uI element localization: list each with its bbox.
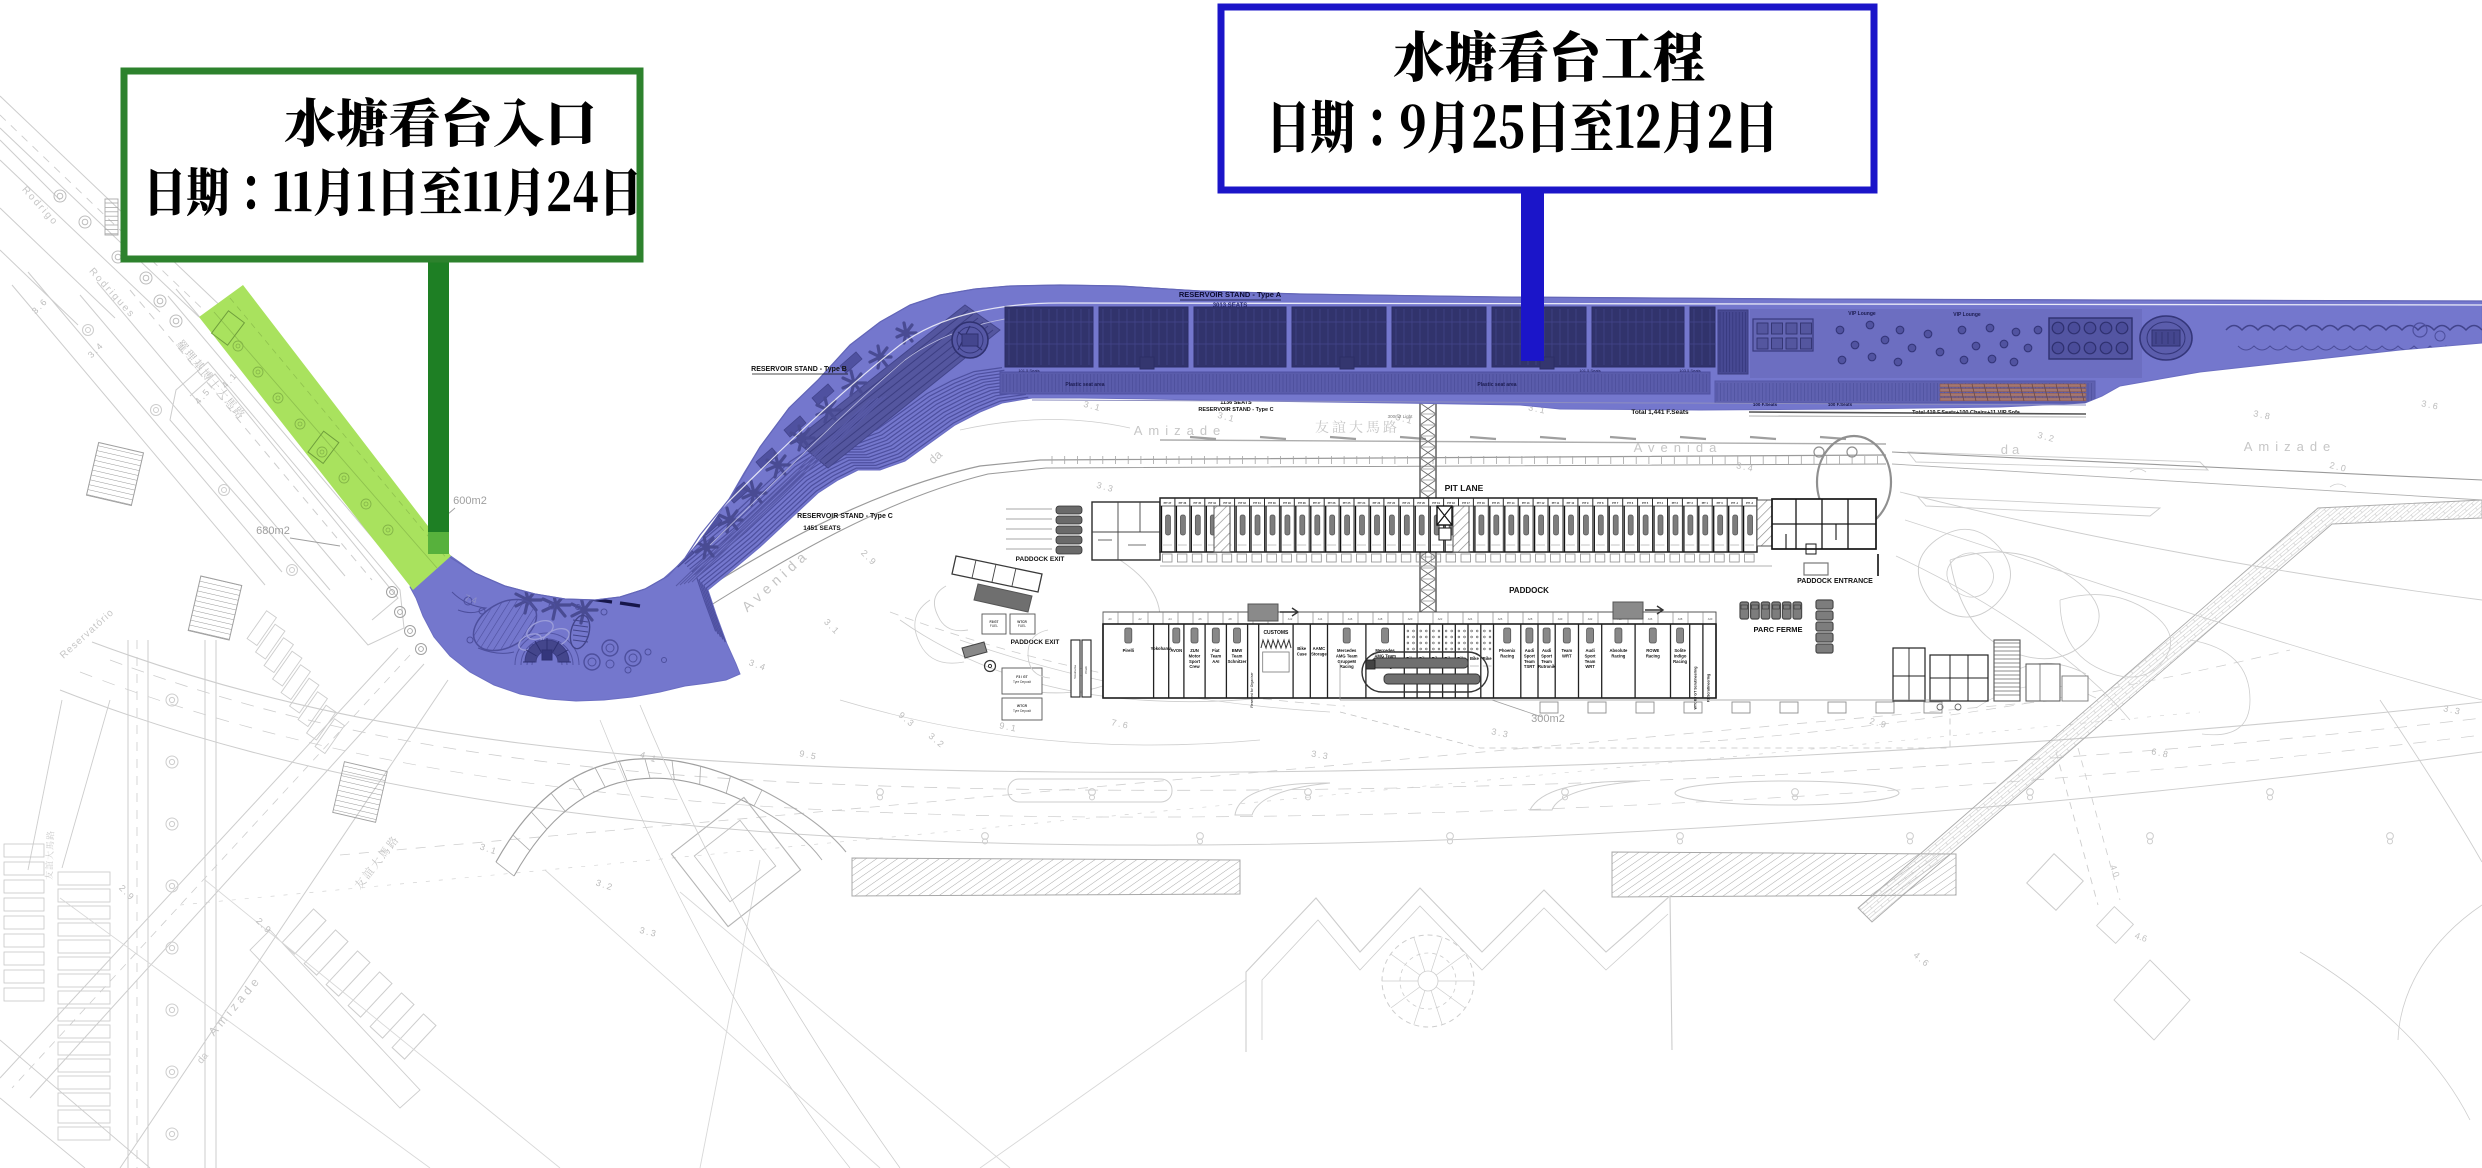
svg-text:Storage: Storage (1311, 651, 1327, 656)
svg-text:PADDOCK: PADDOCK (1509, 586, 1549, 595)
svg-text:101.5 Seats: 101.5 Seats (1579, 368, 1600, 373)
svg-text:AAMC: AAMC (1313, 646, 1326, 651)
svg-text:Team: Team (1524, 659, 1535, 664)
svg-text:PIT 14: PIT 14 (1507, 501, 1515, 505)
svg-text:Plastic seat area: Plastic seat area (1477, 382, 1516, 388)
svg-text:A2: A2 (1138, 617, 1142, 621)
svg-text:103.5 Seats: 103.5 Seats (1679, 368, 1700, 373)
svg-text:PIT 8: PIT 8 (1597, 501, 1604, 505)
svg-text:Crew: Crew (1189, 664, 1200, 669)
svg-text:Team: Team (1210, 653, 1221, 658)
svg-text:RESERVOIR STAND - Type C: RESERVOIR STAND - Type C (797, 513, 893, 520)
svg-text:PIT 37: PIT 37 (1164, 501, 1172, 505)
svg-text:BMW: BMW (1232, 648, 1243, 653)
svg-text:A4: A4 (1168, 617, 1172, 621)
svg-text:PIT 22: PIT 22 (1387, 501, 1395, 505)
svg-text:PIT 20: PIT 20 (1417, 501, 1425, 505)
svg-text:PIT 4: PIT 4 (1657, 501, 1664, 505)
svg-text:Racing: Racing (1611, 653, 1625, 658)
svg-text:1451 SEATS: 1451 SEATS (803, 525, 841, 532)
svg-text:Phoenix: Phoenix (1499, 648, 1516, 653)
svg-text:Bike: Bike (1470, 656, 1480, 661)
svg-text:PIT 2: PIT 2 (1687, 501, 1694, 505)
svg-text:Racing: Racing (1646, 653, 1660, 658)
svg-text:PIT 34: PIT 34 (1208, 501, 1216, 505)
svg-text:A24: A24 (1468, 617, 1473, 621)
svg-text:RESERVOIR STAND - Type A: RESERVOIR STAND - Type A (1179, 290, 1282, 299)
svg-text:ROWE: ROWE (1646, 648, 1659, 653)
svg-text:ZUN: ZUN (1190, 648, 1199, 653)
svg-text:PIT 7: PIT 7 (1612, 501, 1619, 505)
svg-text:Sport: Sport (1524, 653, 1536, 658)
svg-text:Plastic seat area: Plastic seat area (1065, 382, 1104, 388)
svg-text:PIT 31: PIT 31 (1253, 501, 1261, 505)
svg-text:A36: A36 (1648, 617, 1653, 621)
svg-text:Tyre Deposit: Tyre Deposit (1013, 680, 1031, 684)
svg-text:Sport: Sport (1541, 653, 1553, 658)
svg-text:PIT 11: PIT 11 (1552, 501, 1560, 505)
svg-text:VIP Lounge: VIP Lounge (1953, 312, 1981, 318)
svg-text:A32: A32 (1588, 617, 1593, 621)
svg-text:Fiat: Fiat (1212, 648, 1220, 653)
svg-text:Racing: Racing (1340, 664, 1354, 669)
svg-text:Tyre Deposit: Tyre Deposit (1013, 709, 1031, 713)
svg-text:da: da (2001, 442, 2023, 457)
svg-text:PIT 13: PIT 13 (1522, 501, 1530, 505)
svg-text:A40: A40 (1708, 617, 1713, 621)
svg-text:A6: A6 (1198, 617, 1202, 621)
svg-text:Amizade: Amizade (1134, 423, 1227, 438)
svg-text:A16: A16 (1348, 617, 1353, 621)
svg-text:PARC FERME: PARC FERME (1753, 625, 1802, 634)
svg-text:F3 / GT: F3 / GT (1016, 675, 1028, 679)
svg-text:100 F.Seats: 100 F.Seats (1828, 402, 1853, 407)
svg-text:A38: A38 (1678, 617, 1683, 621)
svg-text:Amizade: Amizade (2244, 439, 2337, 454)
svg-text:Pirelli: Pirelli (1084, 666, 1088, 674)
svg-text:AVON: AVON (1170, 648, 1182, 653)
svg-text:PIT 21: PIT 21 (1402, 501, 1410, 505)
svg-text:Audi: Audi (1525, 648, 1534, 653)
svg-text:Audi: Audi (1542, 648, 1551, 653)
svg-text:WTCR / GT Scrutineering: WTCR / GT Scrutineering (1693, 667, 1697, 710)
svg-text:VIP Lounge: VIP Lounge (1848, 311, 1876, 317)
svg-text:PIT 25: PIT 25 (1343, 501, 1351, 505)
svg-text:680m2: 680m2 (256, 525, 290, 537)
svg-text:PADDOCK EXIT: PADDOCK EXIT (1011, 639, 1060, 646)
svg-text:PIT 16: PIT 16 (1477, 501, 1485, 505)
svg-text:Team: Team (1232, 653, 1243, 658)
svg-text:Total 1,441 F.Seats: Total 1,441 F.Seats (1631, 409, 1689, 416)
svg-text:AAI: AAI (1212, 659, 1219, 664)
svg-text:PIT 1: PIT 1 (1702, 501, 1709, 505)
svg-text:PIT 36: PIT 36 (1179, 501, 1187, 505)
svg-text:A26: A26 (1498, 617, 1503, 621)
svg-text:Team: Team (1561, 648, 1572, 653)
svg-text:A18: A18 (1378, 617, 1383, 621)
svg-text:100 F.Seats: 100 F.Seats (1753, 402, 1778, 407)
svg-text:A14: A14 (1318, 617, 1323, 621)
svg-text:PIT -1: PIT -1 (1731, 501, 1739, 505)
svg-text:101.5 Seats: 101.5 Seats (1018, 368, 1039, 373)
svg-text:TSRT: TSRT (1524, 664, 1535, 669)
svg-text:Solite: Solite (1674, 648, 1686, 653)
svg-text:Mercedes: Mercedes (1337, 648, 1357, 653)
svg-text:Avenida: Avenida (1634, 440, 1723, 455)
svg-text:PIT 9: PIT 9 (1582, 501, 1589, 505)
svg-text:PIT 6: PIT 6 (1627, 501, 1634, 505)
svg-text:300m2 Light: 300m2 Light (1388, 414, 1414, 419)
svg-text:Yokohama: Yokohama (1073, 665, 1077, 679)
svg-text:PADDOCK EXIT: PADDOCK EXIT (1016, 556, 1065, 563)
svg-text:AMG Team: AMG Team (1336, 653, 1358, 658)
svg-text:PADDOCK ENTRANCE: PADDOCK ENTRANCE (1797, 578, 1873, 585)
svg-text:PIT 30: PIT 30 (1268, 501, 1276, 505)
svg-text:Rutronik: Rutronik (1538, 664, 1556, 669)
svg-text:Team: Team (1585, 659, 1596, 664)
svg-text:Racing: Racing (1673, 659, 1687, 664)
svg-text:RESERVOIR STAND - Type B: RESERVOIR STAND - Type B (751, 366, 847, 373)
svg-text:A0: A0 (1108, 617, 1112, 621)
svg-text:A22: A22 (1438, 617, 1443, 621)
svg-text:Pirelli: Pirelli (1123, 648, 1134, 653)
svg-text:PIT -2: PIT -2 (1746, 501, 1754, 505)
svg-text:A20: A20 (1408, 617, 1413, 621)
svg-text:Absolute: Absolute (1609, 648, 1628, 653)
svg-text:PIT 28: PIT 28 (1298, 501, 1306, 505)
svg-text:A28: A28 (1528, 617, 1533, 621)
svg-text:PIT 18: PIT 18 (1447, 501, 1455, 505)
svg-text:Sport: Sport (1189, 659, 1201, 664)
svg-text:Audi: Audi (1585, 648, 1594, 653)
svg-text:Sport: Sport (1585, 653, 1597, 658)
svg-text:PIT 3: PIT 3 (1672, 501, 1679, 505)
svg-text:Case: Case (1297, 651, 1308, 656)
svg-text:Racing: Racing (1500, 653, 1514, 658)
svg-text:FUEL: FUEL (1018, 624, 1026, 628)
svg-text:PIT 17: PIT 17 (1462, 501, 1470, 505)
svg-text:WTCR: WTCR (1017, 704, 1028, 708)
svg-text:PIT 32: PIT 32 (1238, 501, 1246, 505)
svg-text:PIT 35: PIT 35 (1193, 501, 1201, 505)
svg-text:CUSTOMS: CUSTOMS (1263, 630, 1289, 636)
svg-text:Indigo: Indigo (1674, 653, 1687, 658)
svg-text:F3 Scrutineering: F3 Scrutineering (1706, 674, 1710, 702)
svg-text:A12: A12 (1288, 617, 1293, 621)
svg-text:WRT: WRT (1562, 653, 1572, 658)
svg-text:PIT 24: PIT 24 (1358, 501, 1366, 505)
svg-text:PIT 27: PIT 27 (1313, 501, 1321, 505)
svg-text:RESERVOIR STAND - Type C: RESERVOIR STAND - Type C (1198, 407, 1273, 413)
svg-text:PIT 33: PIT 33 (1223, 501, 1231, 505)
svg-text:Motor: Motor (1189, 653, 1201, 658)
svg-text:Team: Team (1541, 659, 1552, 664)
svg-text:PIT 19: PIT 19 (1432, 501, 1440, 505)
svg-text:WRT: WRT (1585, 664, 1595, 669)
svg-text:PIT 23: PIT 23 (1373, 501, 1381, 505)
svg-text:PIT LANE: PIT LANE (1445, 483, 1484, 493)
svg-text:600m2: 600m2 (453, 495, 487, 507)
svg-text:3013 SEATS: 3013 SEATS (1213, 303, 1248, 309)
svg-text:PIT 10: PIT 10 (1567, 501, 1575, 505)
svg-text:FUEL: FUEL (990, 624, 998, 628)
svg-text:Reserved for Organiser: Reserved for Organiser (1250, 672, 1254, 708)
svg-text:PIT 15: PIT 15 (1492, 501, 1500, 505)
svg-text:Schnitzer: Schnitzer (1228, 659, 1247, 664)
svg-text:PIT 29: PIT 29 (1283, 501, 1291, 505)
svg-text:PIT 5: PIT 5 (1642, 501, 1649, 505)
svg-text:A8: A8 (1228, 617, 1232, 621)
svg-text:PIT 0: PIT 0 (1717, 501, 1724, 505)
svg-text:A30: A30 (1558, 617, 1563, 621)
svg-text:PIT 26: PIT 26 (1328, 501, 1336, 505)
svg-text:Bike: Bike (1297, 646, 1307, 651)
svg-text:PIT 12: PIT 12 (1537, 501, 1545, 505)
